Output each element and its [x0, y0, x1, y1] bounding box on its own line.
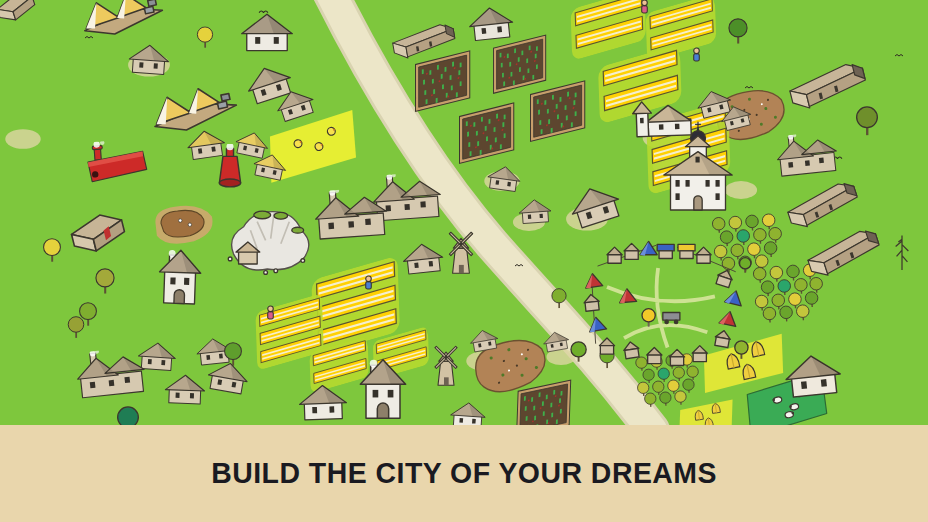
tree: [66, 316, 86, 340]
large-house[interactable]: [312, 181, 390, 250]
tree: [42, 238, 62, 264]
game-map[interactable]: [0, 0, 928, 425]
villager[interactable]: [690, 46, 703, 63]
house[interactable]: [466, 0, 516, 46]
red-barn[interactable]: [82, 136, 154, 195]
bird: [744, 84, 754, 90]
house[interactable]: [127, 41, 171, 78]
promo-banner: BUILD THE CITY OF YOUR DREAMS: [0, 425, 928, 522]
house[interactable]: [781, 345, 844, 405]
house[interactable]: [163, 371, 206, 406]
house[interactable]: [297, 379, 349, 425]
stone-quarry[interactable]: [220, 202, 318, 282]
tree: [114, 406, 142, 425]
tree: [196, 26, 214, 50]
bird: [514, 262, 524, 268]
house[interactable]: [484, 162, 524, 195]
house[interactable]: [203, 356, 252, 397]
villager[interactable]: [638, 0, 651, 15]
market-square[interactable]: [562, 232, 758, 374]
windmill[interactable]: [440, 226, 482, 280]
bird: [894, 52, 904, 58]
tall-house[interactable]: [155, 241, 205, 311]
kiln[interactable]: [214, 144, 246, 190]
bird: [84, 34, 94, 40]
screenshot-stage: BUILD THE CITY OF YOUR DREAMS: [0, 0, 928, 522]
house[interactable]: [400, 238, 446, 278]
villager[interactable]: [264, 304, 277, 321]
windmill[interactable]: [426, 340, 466, 392]
house[interactable]: [445, 399, 491, 425]
sand-patch: [0, 128, 46, 150]
pine-tree: [892, 228, 912, 274]
large-house[interactable]: [73, 341, 149, 410]
banner-title: BUILD THE CITY OF YOUR DREAMS: [211, 457, 717, 490]
tree: [854, 106, 880, 138]
tree: [726, 18, 750, 46]
house[interactable]: [240, 8, 294, 56]
tree: [94, 268, 116, 296]
house[interactable]: [517, 195, 553, 227]
cathedral[interactable]: [656, 120, 740, 220]
tall-house[interactable]: [356, 354, 410, 422]
villager[interactable]: [362, 274, 375, 291]
